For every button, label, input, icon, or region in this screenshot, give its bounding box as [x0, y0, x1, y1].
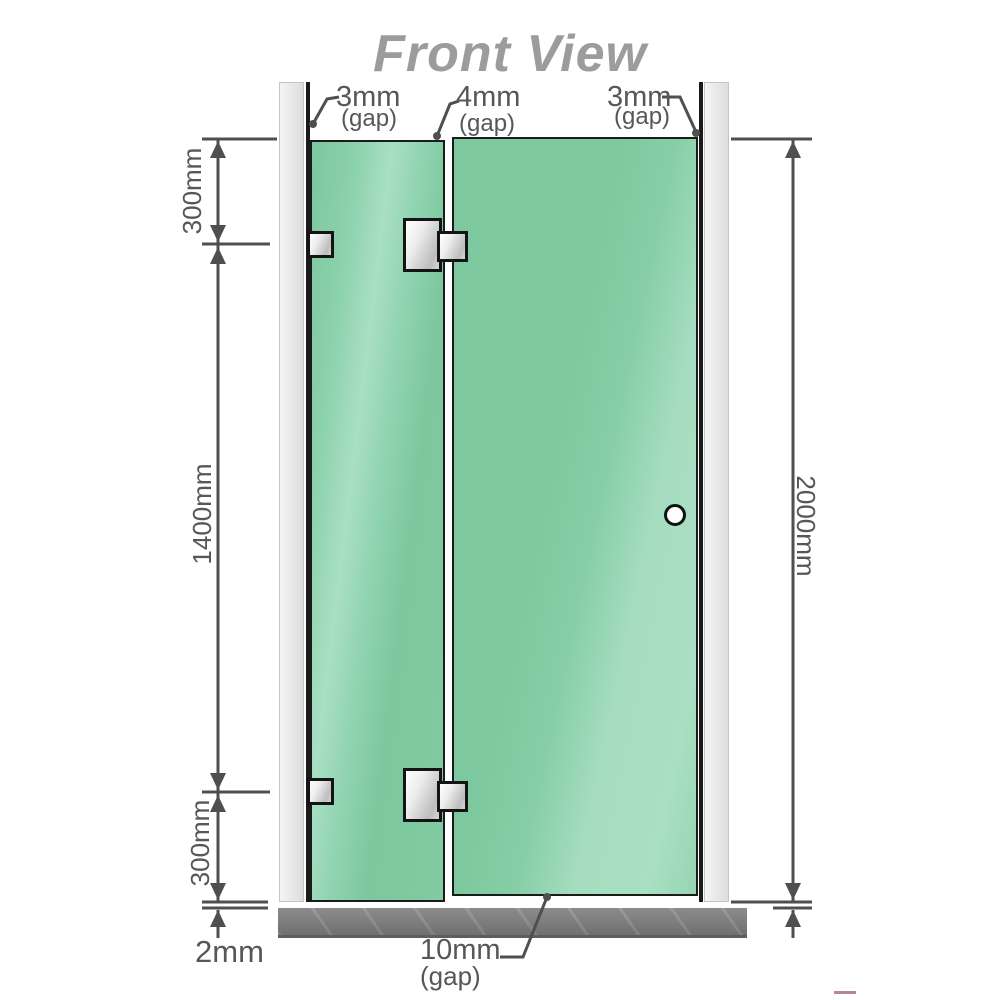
arrowhead	[210, 141, 226, 158]
label-door-bottom-gap-unit: (gap)	[420, 963, 481, 989]
arrowhead	[210, 225, 226, 242]
dimension-lines-layer	[0, 0, 1000, 1000]
arrowhead	[210, 773, 226, 790]
label-gap-middle-unit: (gap)	[459, 112, 515, 136]
arrowhead	[785, 883, 801, 900]
label-height-middle: 1400mm	[189, 463, 215, 564]
arrowhead	[210, 247, 226, 264]
arrowhead	[210, 910, 226, 927]
leader-dot	[692, 129, 700, 137]
label-total-height: 2000mm	[793, 475, 819, 576]
label-gap-middle-value: 4mm	[456, 83, 520, 112]
leader-dot	[433, 132, 441, 140]
artifact-mark	[834, 991, 856, 994]
arrowhead	[785, 910, 801, 927]
leader-dot	[309, 120, 317, 128]
arrowhead	[785, 141, 801, 158]
label-height-bottom: 300mm	[187, 800, 213, 887]
leader-door-bottom-gap	[500, 897, 547, 957]
label-height-top: 300mm	[179, 148, 205, 235]
leader-dot	[543, 893, 551, 901]
label-gap-right-unit: (gap)	[614, 105, 670, 129]
label-gap-left-unit: (gap)	[341, 107, 397, 131]
front-view-diagram: Front View	[0, 0, 1000, 1000]
label-floor-gap: 2mm	[195, 936, 264, 967]
